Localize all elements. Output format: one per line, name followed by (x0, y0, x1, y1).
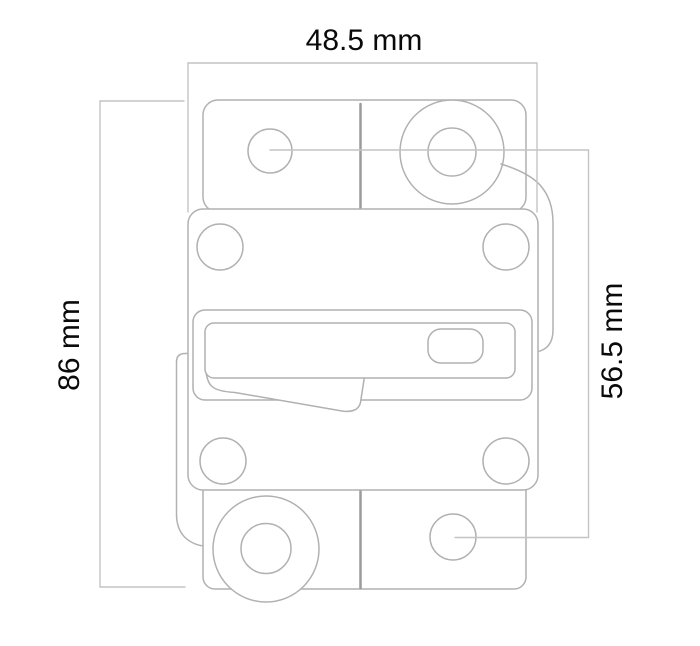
width-dimension-label: 48.5 mm (264, 24, 464, 58)
hole-spacing-dimension-label: 56.5 mm (596, 283, 630, 400)
height-dimension-label: 86 mm (53, 299, 87, 391)
top-right-terminal-boss (400, 100, 504, 204)
lever-handle (205, 323, 515, 378)
bottom-left-terminal-boss (213, 496, 319, 602)
technical-drawing: 48.5 mm 86 mm 56.5 mm (0, 0, 700, 646)
breaker-front-view (0, 0, 700, 646)
